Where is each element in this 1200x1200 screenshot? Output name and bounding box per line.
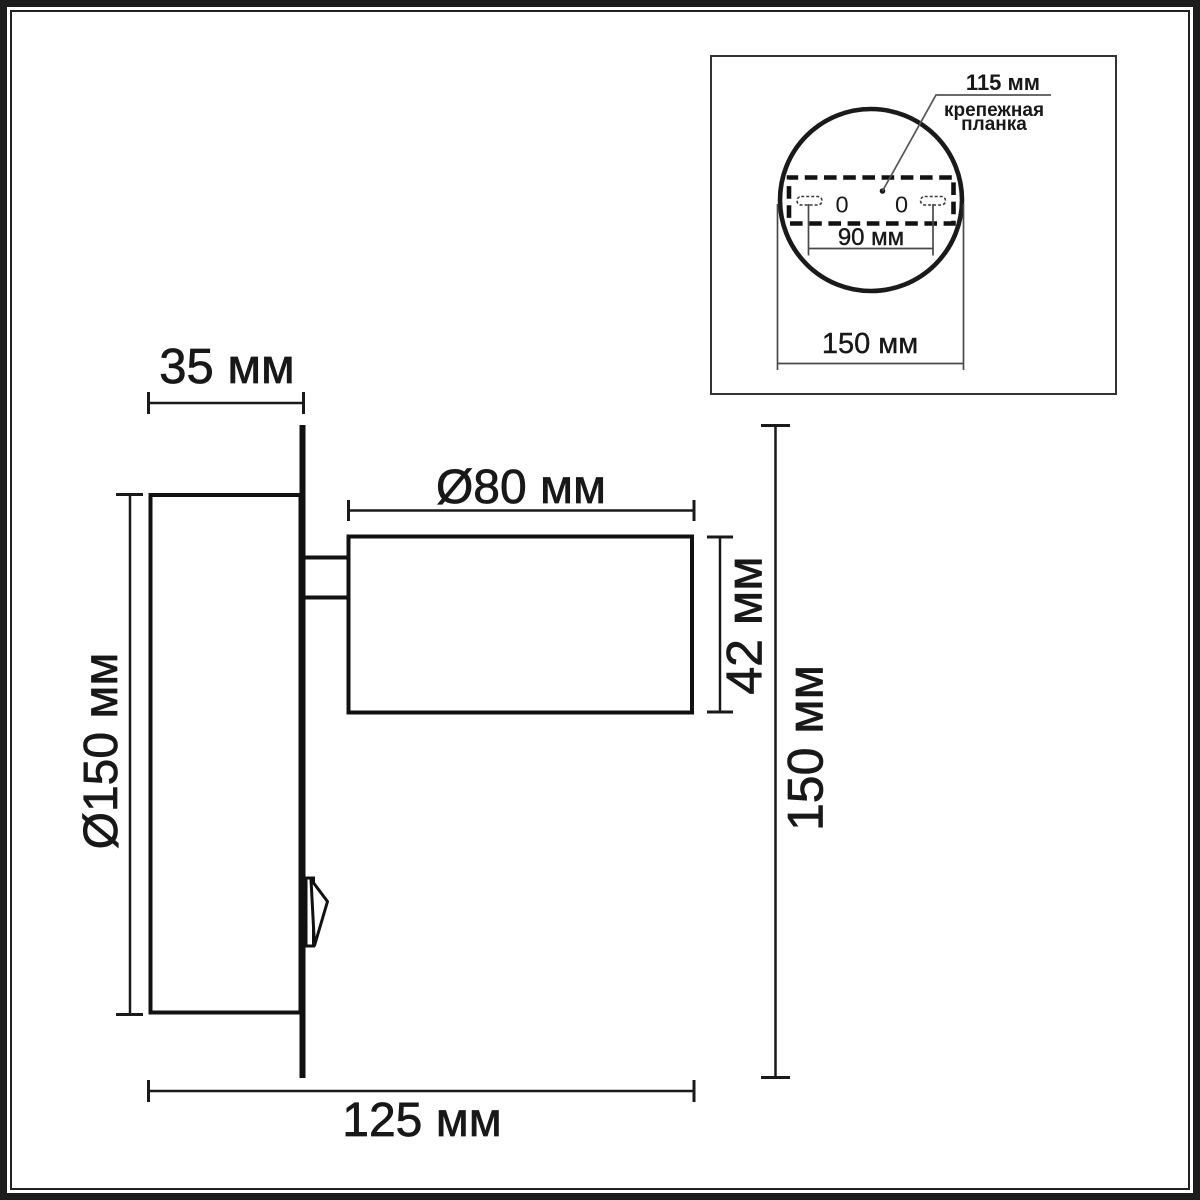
svg-text:42 мм: 42 мм — [717, 556, 773, 694]
svg-text:Ø150 мм: Ø150 мм — [75, 653, 128, 850]
svg-text:0: 0 — [835, 192, 848, 218]
svg-text:150 мм: 150 мм — [822, 328, 918, 360]
svg-text:90 мм: 90 мм — [838, 224, 904, 251]
svg-text:планка: планка — [961, 114, 1027, 135]
svg-text:Ø80 мм: Ø80 мм — [436, 461, 606, 514]
svg-text:115 мм: 115 мм — [966, 70, 1040, 95]
svg-text:0: 0 — [895, 192, 908, 218]
svg-text:35 мм: 35 мм — [159, 340, 295, 394]
svg-text:150 мм: 150 мм — [778, 665, 834, 831]
svg-text:125 мм: 125 мм — [342, 1094, 501, 1147]
